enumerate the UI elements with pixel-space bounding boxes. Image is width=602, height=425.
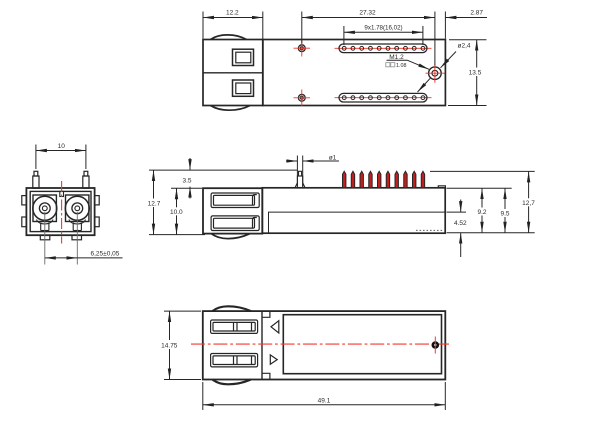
svg-text:12.7: 12.7 <box>148 200 161 207</box>
svg-text:10.0: 10.0 <box>170 209 183 216</box>
svg-text:ø1: ø1 <box>329 155 337 162</box>
svg-text:1.08: 1.08 <box>396 63 407 69</box>
svg-text:12,7: 12,7 <box>522 200 535 207</box>
svg-text:13.5: 13.5 <box>469 70 482 77</box>
svg-text:9.5: 9.5 <box>500 211 509 218</box>
svg-text:14.75: 14.75 <box>161 342 178 349</box>
svg-text:ø2,4: ø2,4 <box>457 43 470 50</box>
svg-text:49.1: 49.1 <box>318 397 331 404</box>
svg-text:12.2: 12.2 <box>226 10 239 17</box>
svg-text:10: 10 <box>58 143 66 150</box>
svg-text:27.32: 27.32 <box>359 10 376 17</box>
svg-text:9.2: 9.2 <box>477 209 486 216</box>
svg-text:M1.2: M1.2 <box>389 54 404 61</box>
svg-text:2.87: 2.87 <box>470 10 483 17</box>
svg-text:9x1.78(16,02): 9x1.78(16,02) <box>364 25 402 32</box>
svg-text:4.52: 4.52 <box>454 220 467 227</box>
svg-text:3.5: 3.5 <box>182 177 191 184</box>
svg-text:6,25±0,05: 6,25±0,05 <box>91 251 120 258</box>
